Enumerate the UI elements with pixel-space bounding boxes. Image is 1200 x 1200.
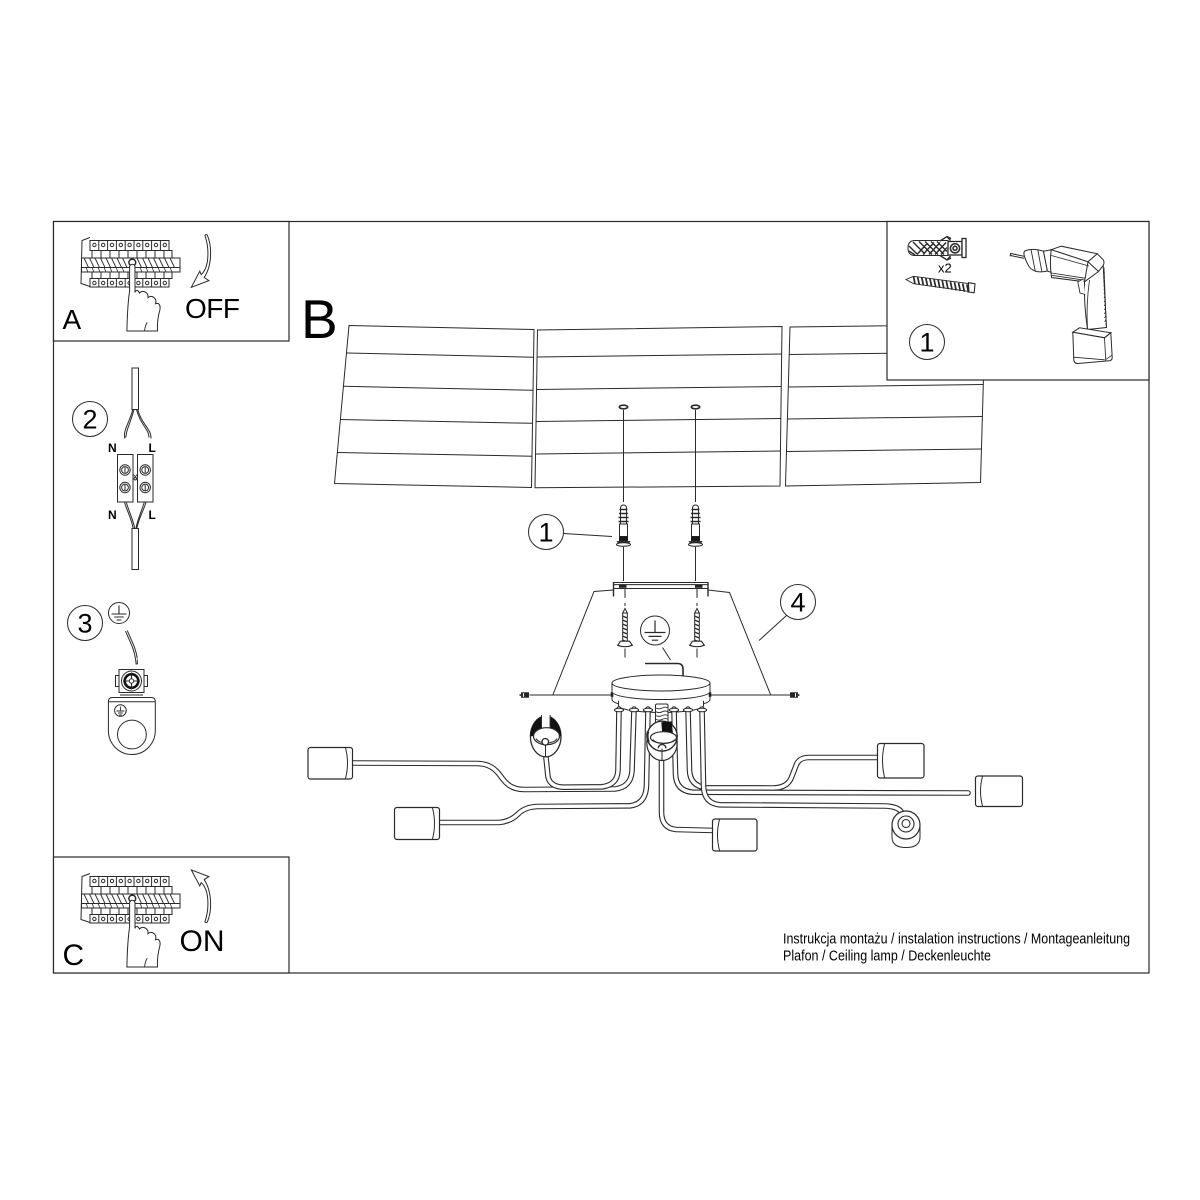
svg-text:OFF: OFF: [185, 293, 240, 324]
svg-text:1: 1: [919, 328, 934, 358]
svg-text:C: C: [63, 939, 85, 972]
svg-text:N: N: [108, 441, 117, 455]
svg-text:Plafon / Ceiling lamp / Decken: Plafon / Ceiling lamp / Deckenleuchte: [783, 949, 991, 965]
svg-text:4: 4: [790, 588, 805, 618]
svg-text:B: B: [301, 288, 338, 350]
svg-text:ON: ON: [180, 925, 225, 958]
svg-text:3: 3: [77, 609, 92, 639]
svg-text:2: 2: [82, 405, 97, 435]
svg-text:x2: x2: [938, 261, 952, 276]
svg-text:L: L: [149, 441, 156, 455]
svg-text:1: 1: [538, 518, 553, 548]
svg-text:Instrukcja montażu / instalati: Instrukcja montażu / instalation instruc…: [783, 932, 1130, 948]
svg-text:N: N: [108, 508, 117, 522]
svg-text:L: L: [149, 508, 156, 522]
svg-text:A: A: [63, 304, 82, 335]
